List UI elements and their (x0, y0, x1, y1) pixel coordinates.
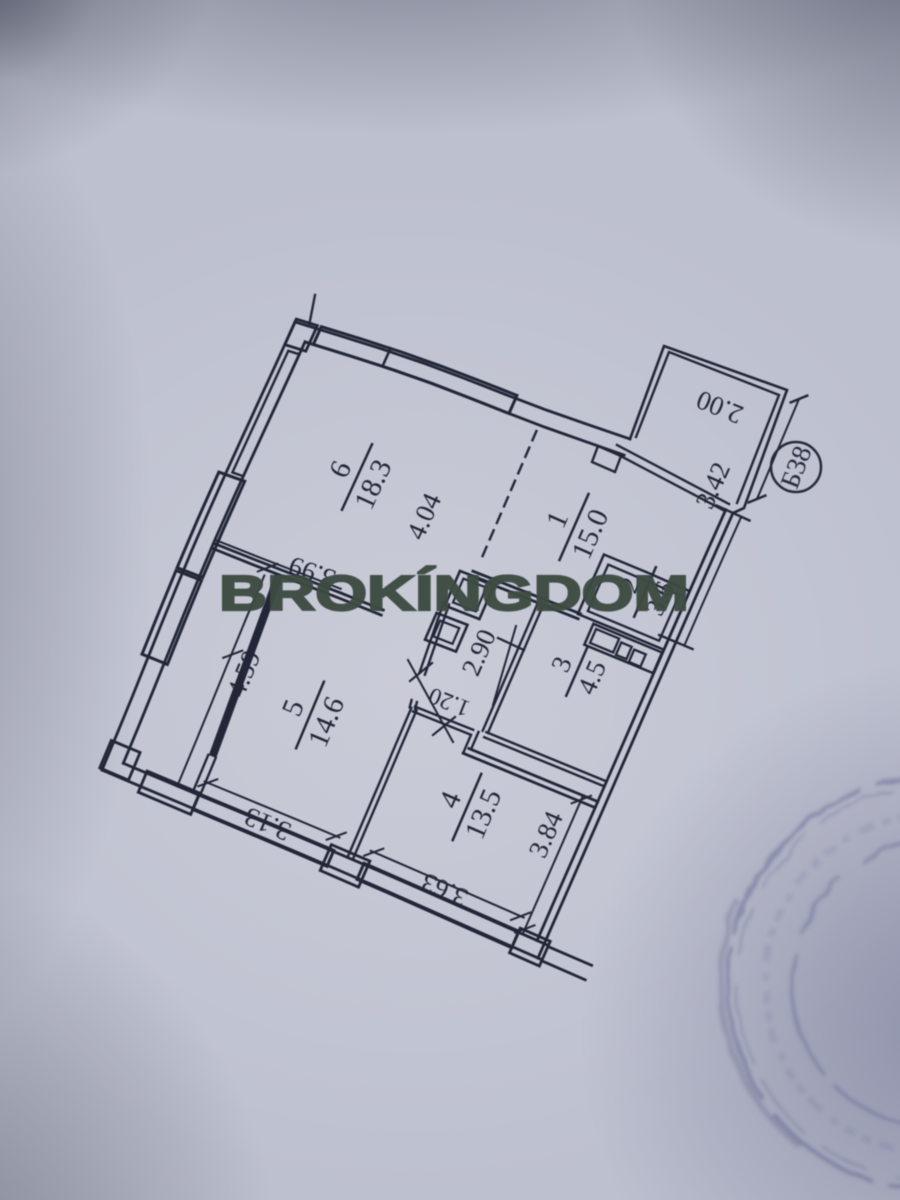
svg-text:BROKÍNGDOM: BROKÍNGDOM (219, 567, 689, 621)
